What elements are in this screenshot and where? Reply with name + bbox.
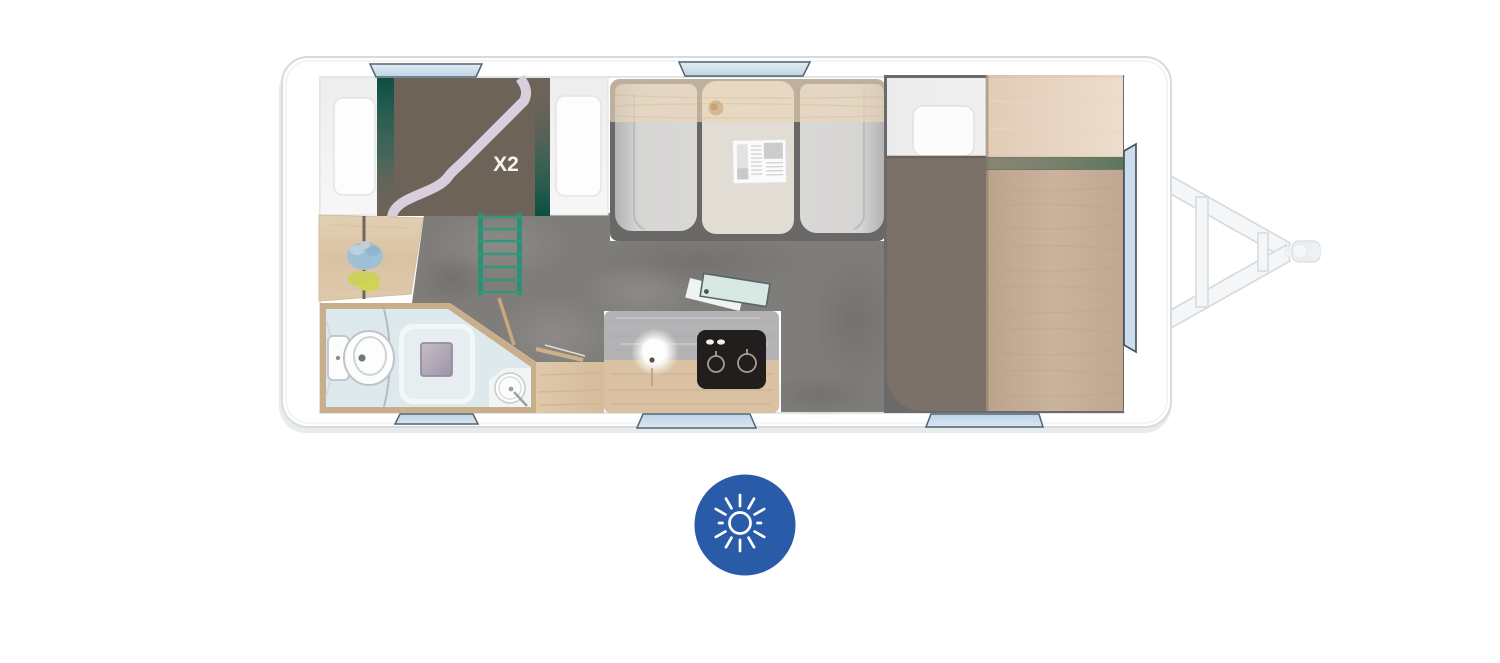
svg-text:X2: X2: [493, 153, 519, 176]
